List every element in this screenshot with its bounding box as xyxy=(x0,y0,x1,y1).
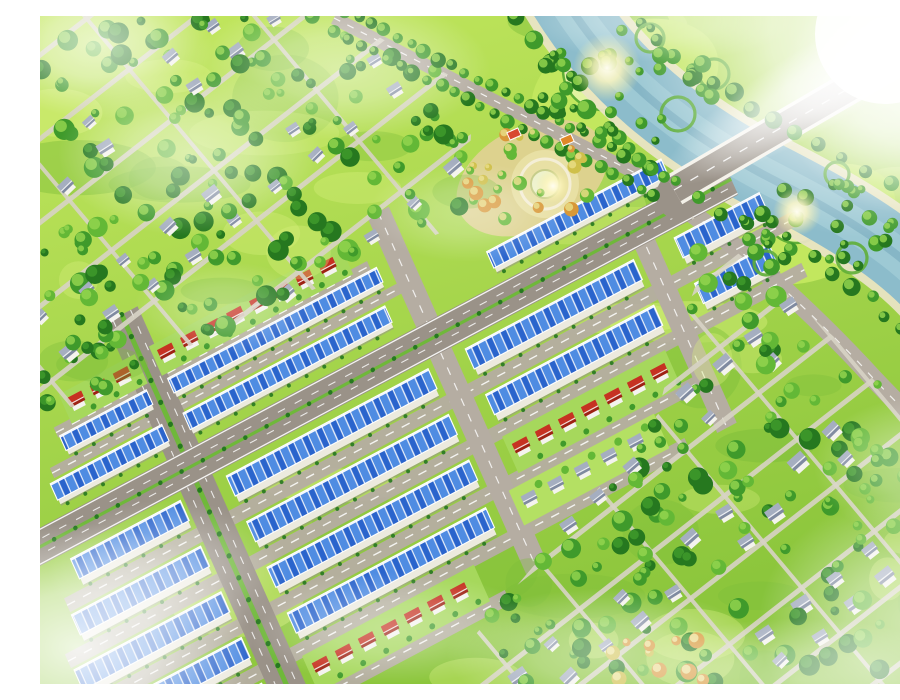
masterplan-scene xyxy=(40,16,900,684)
cloud-glow xyxy=(368,162,568,262)
masterplan-aerial-render xyxy=(40,16,900,684)
cloud-glow xyxy=(133,262,317,354)
